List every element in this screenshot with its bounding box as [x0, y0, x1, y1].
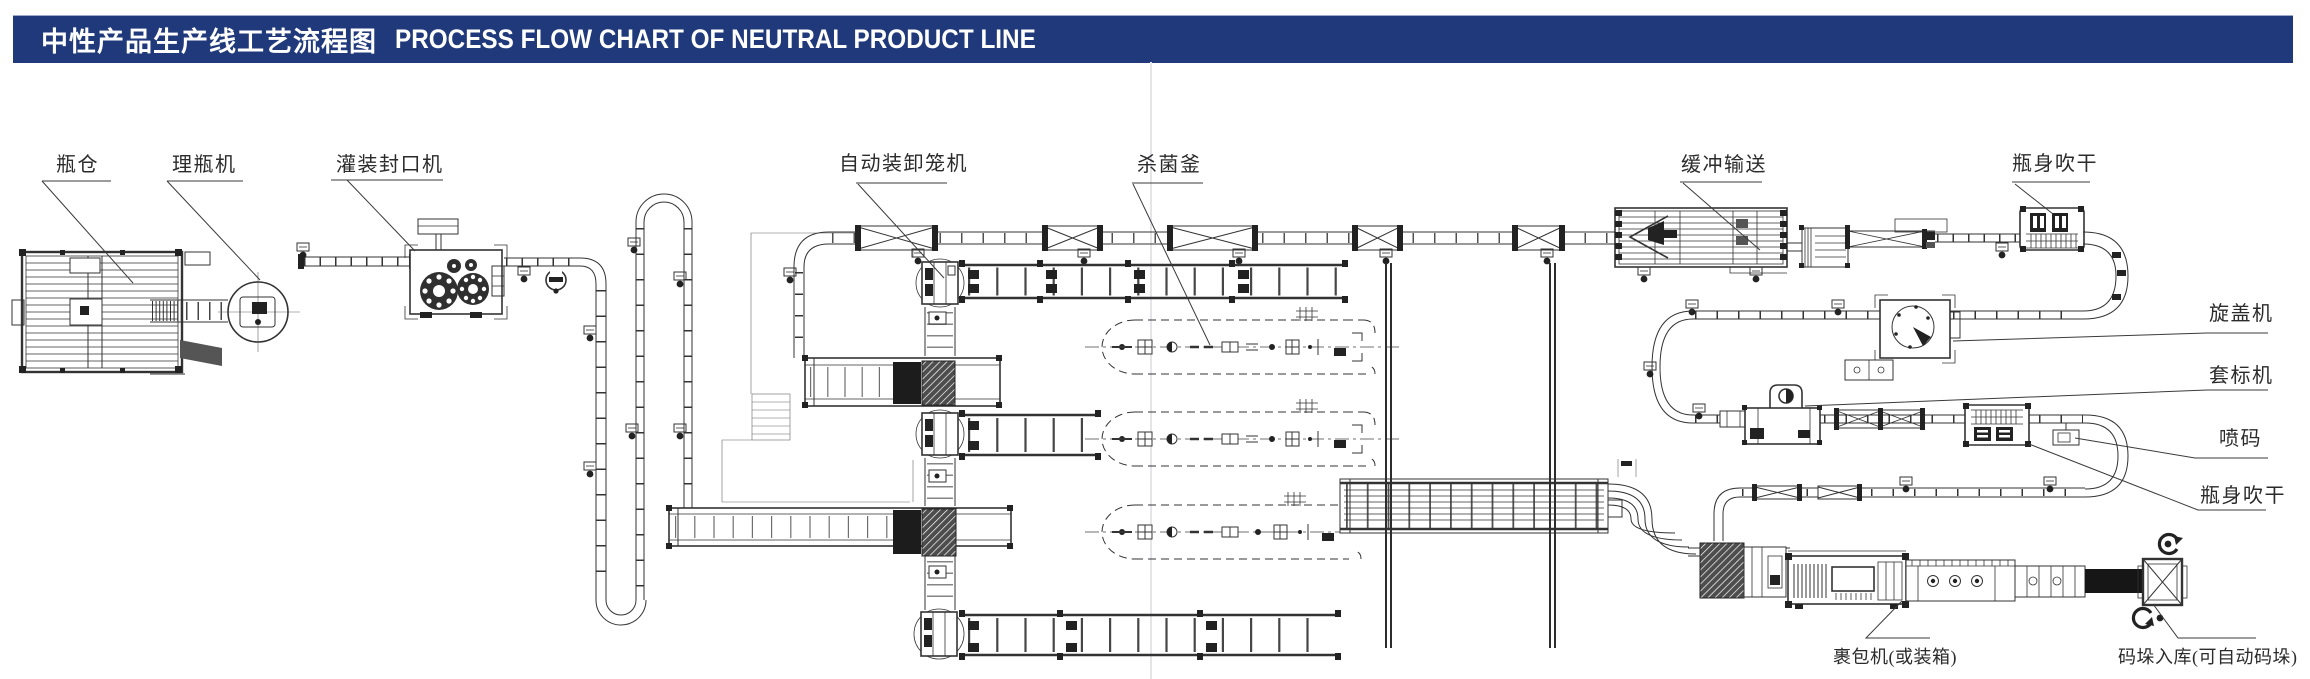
cage-loader-turntable-top [916, 259, 964, 307]
cooler-outlet-bend [1608, 484, 1696, 554]
label-sterilization-kettle: 杀菌釜 [1137, 154, 1202, 176]
buffer-conveyor-machine [1615, 208, 1787, 282]
filling-capping-machine-drawing [405, 219, 507, 319]
label-buffer-conveyor: 缓冲输送 [1681, 154, 1767, 176]
label-bottle-drying-right: 瓶身吹干 [2200, 485, 2286, 507]
process-flow-chart-page: 中性产品生产线工艺流程图 PROCESS FLOW CHART OF NEUTR… [0, 0, 2310, 679]
serpentine-accumulation-conveyor [504, 194, 692, 625]
palletizer-infeed-conveyor [2015, 566, 2143, 597]
unscrambler-to-filler-conveyor [297, 243, 415, 269]
braced-transfer-conveyor [1845, 219, 2020, 258]
rinser-clamp-symbol [546, 267, 566, 294]
label-capping-machine: 旋盖机 [2209, 303, 2274, 325]
bottle-unscrambler-machine [218, 272, 300, 352]
cooling-tunnel-conveyor [1340, 459, 1636, 533]
label-palletizing: 码垛入库(可自动码垛) [2118, 646, 2298, 668]
carton-inspection-unit [1906, 560, 2015, 601]
dryer-to-capper-turn [2083, 232, 2128, 319]
cage-loader-turntable-bottom [914, 609, 964, 659]
wrapping-machine-drawing [1785, 551, 1909, 609]
label-sleeve-labeler: 套标机 [2209, 365, 2274, 387]
labeler-line-return-turn [2085, 415, 2128, 497]
cage-transfer-2 [925, 458, 955, 506]
cage-conveyor-row-top [959, 260, 1348, 303]
label-bottle-silo: 瓶仓 [56, 154, 99, 176]
cage-transfer-3 [925, 556, 955, 610]
dark-transfer-belt [2085, 569, 2143, 593]
packing-line [1688, 543, 1790, 598]
partition-walls [1386, 263, 1555, 648]
label-bottle-unscrambler: 理瓶机 [172, 154, 237, 176]
pasteurizer-infeed-belt-lower [666, 505, 1013, 556]
leader-filling-capping [331, 180, 443, 251]
label-auto-cage-loader: 自动装卸笼机 [839, 153, 968, 175]
bottle-silo-machine [12, 249, 222, 374]
label-inkjet-coder: 喷码 [2219, 428, 2262, 450]
bottle-dryer-right-machine [1963, 403, 2031, 447]
label-wrapping-machine: 裹包机(或装箱) [1833, 646, 1957, 668]
kettle-1 [1085, 307, 1400, 374]
label-filling-capping-machine: 灌装封口机 [336, 154, 444, 176]
leader-capping-machine [1953, 333, 2268, 341]
reaccumulation-unit [1787, 225, 1850, 268]
return-line-to-packer [1714, 477, 2085, 541]
process-flow-drawing [0, 0, 2310, 679]
overhead-transfer-conveyor [829, 225, 1615, 264]
cage-conveyor-row-middle [959, 410, 1101, 460]
rotation-arrow-top [2159, 535, 2183, 554]
kettle-2 [1085, 399, 1400, 466]
cage-transfer-1 [925, 307, 955, 356]
leader-palletizing [2153, 604, 2256, 638]
capping-machine-drawing [1845, 295, 1960, 380]
kettle-area-feed-conveyor [784, 232, 829, 358]
label-bottle-drying-top: 瓶身吹干 [2012, 153, 2098, 175]
sleeve-labeler-machine [1742, 385, 1822, 445]
pasteurizer-infeed-belt-upper [802, 355, 1002, 408]
cage-loader-turntable-middle [916, 410, 964, 458]
inkjet-coder-unit [2053, 423, 2079, 445]
leader-sleeve-labeler [1805, 390, 2268, 406]
